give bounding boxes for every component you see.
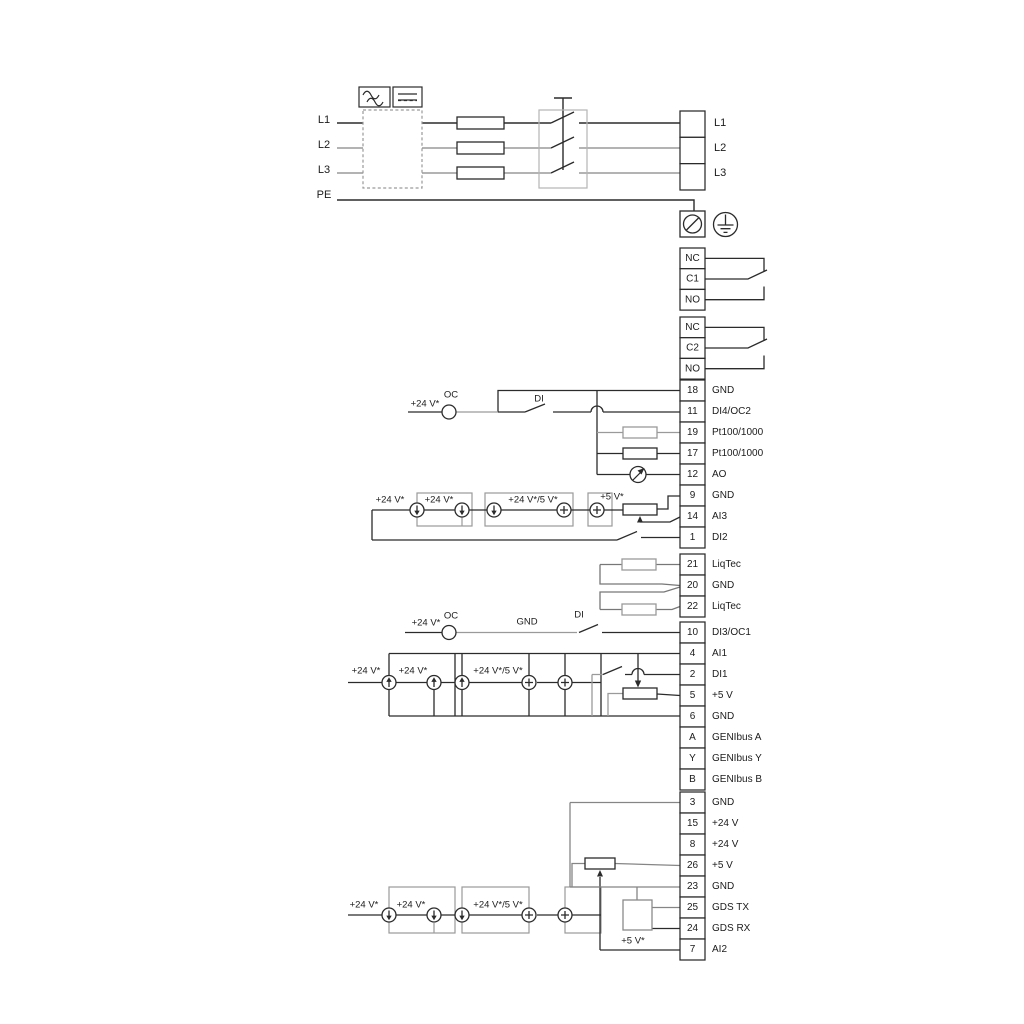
voltage-source-plus-icon bbox=[522, 908, 536, 922]
relay-cell-label-NO: NO bbox=[685, 294, 700, 305]
terminal-number-19: 19 bbox=[687, 427, 699, 438]
terminal-label-9: GND bbox=[712, 490, 734, 501]
wiring-diagram: L1 L2 L3 PE +24 V* OC DI +24 V* +24 V* +… bbox=[0, 0, 1024, 1024]
terminal-label-12: AO bbox=[712, 469, 727, 480]
terminal-number-5: 5 bbox=[690, 690, 696, 701]
terminal-number-20: 20 bbox=[687, 580, 699, 591]
relay-cell-label-C1: C1 bbox=[686, 274, 699, 285]
power-in-label-l1: L1 bbox=[318, 114, 330, 126]
terminal-number-10: 10 bbox=[687, 627, 699, 638]
current-source-down-icon bbox=[487, 503, 501, 517]
terminal-label-24: GDS RX bbox=[712, 923, 751, 934]
current-source-up-icon bbox=[455, 676, 469, 690]
terminal-label-21: LiqTec bbox=[712, 559, 741, 570]
terminal-number-7: 7 bbox=[690, 944, 696, 955]
terminal-number-22: 22 bbox=[687, 601, 699, 612]
terminal-label-14: AI3 bbox=[712, 511, 727, 522]
current-source-down-icon bbox=[382, 908, 396, 922]
terminal-label-1: DI2 bbox=[712, 532, 728, 543]
current-source-up-icon bbox=[427, 676, 441, 690]
terminal-label-18: GND bbox=[712, 385, 734, 396]
label-5v: +5 V* bbox=[600, 492, 624, 503]
label-24v: +24 V* bbox=[350, 900, 379, 911]
terminal-number-17: 17 bbox=[687, 448, 699, 459]
terminal-label-26: +5 V bbox=[712, 860, 733, 871]
terminal-label-3: GND bbox=[712, 797, 734, 808]
terminal-label-20: GND bbox=[712, 580, 734, 591]
terminal-label-15: +24 V bbox=[712, 818, 739, 829]
terminal-number-2: 2 bbox=[690, 669, 696, 680]
voltage-source-plus-icon bbox=[558, 676, 572, 690]
terminal-number-24: 24 bbox=[687, 923, 699, 934]
power-in-label-l3: L3 bbox=[318, 164, 330, 176]
open-collector-icon bbox=[442, 405, 456, 419]
power-out-cell-L3 bbox=[680, 164, 705, 190]
terminal-number-8: 8 bbox=[690, 839, 696, 850]
power-out-label-L3: L3 bbox=[714, 167, 726, 179]
terminal-number-A: A bbox=[689, 732, 696, 743]
terminal-number-1: 1 bbox=[690, 532, 696, 543]
terminal-number-3: 3 bbox=[690, 797, 696, 808]
relay-block-1: NCC1NO bbox=[680, 248, 705, 310]
terminal-number-25: 25 bbox=[687, 902, 699, 913]
terminal-number-B: B bbox=[689, 774, 696, 785]
relay-cell-label-NC: NC bbox=[685, 253, 699, 264]
terminal-label-23: GND bbox=[712, 881, 734, 892]
terminal-number-11: 11 bbox=[687, 406, 698, 417]
terminal-label-22: LiqTec bbox=[712, 601, 741, 612]
label-oc: OC bbox=[444, 611, 458, 622]
potentiometer bbox=[623, 688, 657, 699]
terminal-number-9: 9 bbox=[690, 490, 696, 501]
voltage-source-plus-icon bbox=[590, 503, 604, 517]
current-source-down-icon bbox=[455, 503, 469, 517]
relay-cell-label-NO: NO bbox=[685, 363, 700, 374]
label-24v: +24 V* bbox=[376, 495, 405, 506]
label-5v: +5 V* bbox=[621, 936, 645, 947]
terminal-label-19: Pt100/1000 bbox=[712, 427, 764, 438]
relay-block-2: NCC2NO bbox=[680, 317, 705, 379]
liqtec-sensor-resistor bbox=[622, 604, 656, 615]
relay-cell-label-NC: NC bbox=[685, 322, 699, 333]
label-di: DI bbox=[574, 610, 584, 621]
terminal-label-8: +24 V bbox=[712, 839, 739, 850]
label-24v-5v: +24 V*/5 V* bbox=[473, 900, 523, 911]
terminal-number-15: 15 bbox=[687, 818, 699, 829]
terminal-label-17: Pt100/1000 bbox=[712, 448, 764, 459]
power-out-cell-L2 bbox=[680, 137, 705, 163]
terminal-number-4: 4 bbox=[690, 648, 696, 659]
terminal-number-26: 26 bbox=[687, 860, 699, 871]
gds-sensor-box bbox=[623, 900, 652, 930]
label-24v: +24 V* bbox=[425, 495, 454, 506]
label-24v: +24 V* bbox=[399, 666, 428, 677]
terminal-number-18: 18 bbox=[687, 385, 699, 396]
voltage-source-plus-icon bbox=[522, 676, 536, 690]
terminal-number-23: 23 bbox=[687, 881, 699, 892]
label-di: DI bbox=[534, 394, 544, 405]
terminal-number-Y: Y bbox=[689, 753, 696, 764]
terminal-number-14: 14 bbox=[687, 511, 699, 522]
label-gnd: GND bbox=[516, 617, 537, 628]
potentiometer bbox=[585, 858, 615, 869]
voltage-source-plus-icon bbox=[558, 908, 572, 922]
terminal-label-A: GENIbus A bbox=[712, 732, 762, 743]
power-in-label-pe: PE bbox=[317, 189, 332, 201]
current-source-down-icon bbox=[410, 503, 424, 517]
terminal-number-21: 21 bbox=[687, 559, 699, 570]
liqtec-sensor-resistor bbox=[622, 559, 656, 570]
terminal-label-11: DI4/OC2 bbox=[712, 406, 751, 417]
terminal-label-Y: GENIbus Y bbox=[712, 753, 762, 764]
power-in-label-l2: L2 bbox=[318, 139, 330, 151]
label-24v: +24 V* bbox=[352, 666, 381, 677]
label-24v-5v: +24 V*/5 V* bbox=[473, 666, 523, 677]
terminal-label-5: +5 V bbox=[712, 690, 733, 701]
potentiometer bbox=[623, 504, 657, 515]
label-24v: +24 V* bbox=[412, 618, 441, 629]
terminal-label-4: AI1 bbox=[712, 648, 727, 659]
power-out-cell-L1 bbox=[680, 111, 705, 137]
current-source-up-icon bbox=[382, 676, 396, 690]
power-output-block: L1L2L3 bbox=[680, 111, 726, 190]
pt100-resistor-17 bbox=[623, 448, 657, 459]
diagram-background bbox=[0, 0, 1024, 1024]
label-24v-5v: +24 V*/5 V* bbox=[508, 495, 558, 506]
terminal-number-12: 12 bbox=[687, 469, 699, 480]
pt100-resistor-19 bbox=[623, 427, 657, 438]
open-collector-icon bbox=[442, 626, 456, 640]
terminal-number-6: 6 bbox=[690, 711, 696, 722]
label-24v: +24 V* bbox=[397, 900, 426, 911]
current-source-down-icon bbox=[427, 908, 441, 922]
terminal-label-6: GND bbox=[712, 711, 734, 722]
terminal-label-10: DI3/OC1 bbox=[712, 627, 751, 638]
terminal-label-2: DI1 bbox=[712, 669, 728, 680]
power-out-label-L1: L1 bbox=[714, 117, 726, 129]
terminal-label-7: AI2 bbox=[712, 944, 727, 955]
terminal-label-25: GDS TX bbox=[712, 902, 749, 913]
power-out-label-L2: L2 bbox=[714, 142, 726, 154]
current-source-down-icon bbox=[455, 908, 469, 922]
voltage-source-plus-icon bbox=[557, 503, 571, 517]
relay-cell-label-C2: C2 bbox=[686, 343, 699, 354]
label-oc: OC bbox=[444, 390, 458, 401]
terminal-label-B: GENIbus B bbox=[712, 774, 762, 785]
label-24v: +24 V* bbox=[411, 399, 440, 410]
